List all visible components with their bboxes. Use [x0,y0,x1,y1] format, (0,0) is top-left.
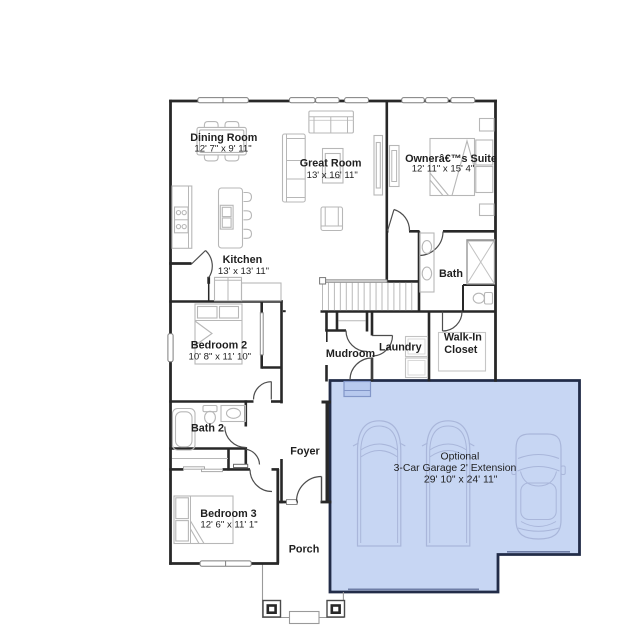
svg-text:12' 6" x 11' 1": 12' 6" x 11' 1" [200,520,257,531]
svg-text:Dining Room: Dining Room [190,132,257,144]
svg-text:Closet: Closet [444,344,477,356]
svg-text:Kitchen: Kitchen [223,254,263,266]
svg-text:12' 7" x 9' 11": 12' 7" x 9' 11" [194,144,251,155]
svg-text:Mudroom: Mudroom [326,348,375,360]
svg-text:3-Car Garage 2' Extension: 3-Car Garage 2' Extension [394,463,517,474]
svg-text:Bath: Bath [439,268,463,280]
svg-text:Foyer: Foyer [290,445,320,457]
svg-text:Porch: Porch [289,543,320,555]
svg-text:Bath 2: Bath 2 [191,422,224,434]
svg-text:Walk-In: Walk-In [444,332,482,344]
svg-text:13' x 16' 11": 13' x 16' 11" [307,170,358,181]
svg-text:Optional: Optional [441,452,480,463]
svg-text:29' 10" x 24' 11": 29' 10" x 24' 11" [424,475,498,486]
svg-text:Bedroom 3: Bedroom 3 [200,508,256,520]
svg-text:Bedroom 2: Bedroom 2 [191,340,247,352]
svg-text:12' 11" x 15' 4": 12' 11" x 15' 4" [412,164,475,175]
svg-text:Great Room: Great Room [300,158,362,170]
svg-text:Laundry: Laundry [379,342,422,354]
svg-text:10' 8" x 11' 10": 10' 8" x 11' 10" [189,351,252,362]
svg-text:13' x 13' 11": 13' x 13' 11" [218,266,269,277]
